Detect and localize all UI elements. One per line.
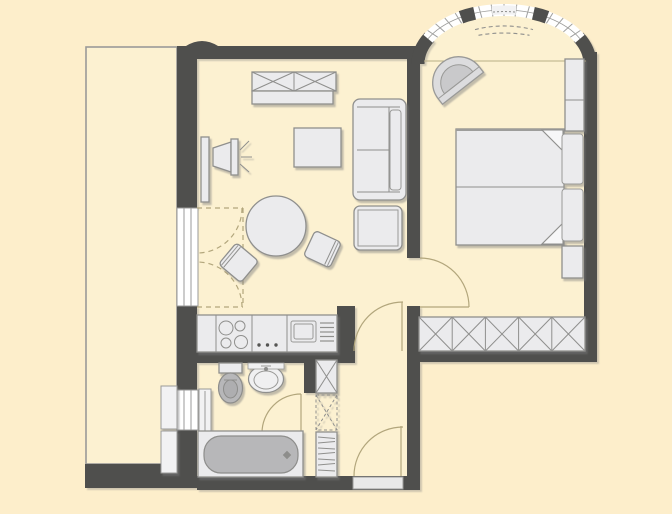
pillow-bottom	[562, 189, 583, 241]
nightstand-bottom	[562, 246, 583, 278]
bay-center-panel	[492, 10, 516, 11]
floor-plan	[0, 0, 672, 514]
balcony-unit-upper	[161, 386, 177, 429]
built-in-wardrobe	[419, 317, 585, 351]
wall-left-middle	[177, 306, 197, 390]
sofa	[353, 99, 406, 200]
balcony-french-window	[177, 208, 198, 306]
washbasin	[248, 363, 284, 393]
pillow-top	[562, 134, 583, 184]
wall-corner-bump	[186, 41, 218, 46]
wall-bottom-balcony	[85, 464, 197, 488]
bay-mullion-left	[461, 13, 475, 17]
wall-below-wardrobe	[407, 350, 597, 362]
round-dining-table	[246, 196, 306, 256]
double-bed	[456, 129, 583, 245]
coffee-table	[294, 128, 341, 167]
bay-mullion-right	[533, 13, 547, 17]
bathroom-radiator	[199, 389, 211, 437]
sideboard-x-front	[252, 72, 336, 104]
wall-top-living	[177, 46, 420, 59]
wall-hall-right	[407, 306, 420, 480]
kitchen-counter	[197, 315, 337, 352]
wall-bedroom-right	[584, 52, 597, 360]
wall-kitchen-endcap	[337, 306, 355, 363]
wall-left-upper	[177, 46, 197, 208]
wall-bathroom-right-stub	[304, 363, 317, 393]
bathtub	[198, 431, 303, 477]
balcony-unit-lower	[161, 431, 177, 473]
bay-window-floor	[418, 10, 590, 64]
bathroom-window	[177, 390, 198, 430]
entrance-threshold	[353, 477, 403, 489]
ottoman-side-table	[354, 206, 402, 250]
wall-living-bedroom	[407, 46, 420, 258]
toilet	[219, 363, 243, 403]
nightstand-top	[565, 59, 584, 131]
